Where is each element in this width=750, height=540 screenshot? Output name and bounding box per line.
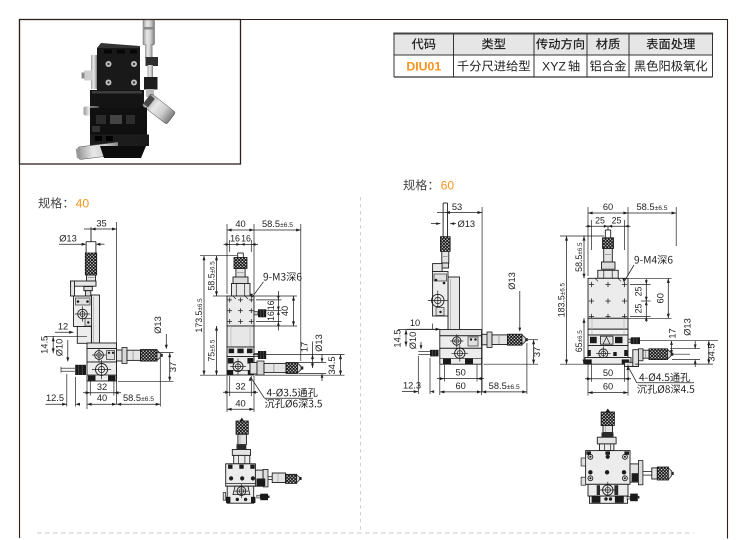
svg-text:173.5±6.5: 173.5±6.5 (194, 298, 204, 333)
svg-text:58.5±6.5: 58.5±6.5 (262, 219, 293, 229)
svg-text:58.5±6.5: 58.5±6.5 (489, 381, 520, 391)
svg-text:34.5: 34.5 (707, 343, 717, 361)
svg-text:60: 60 (656, 293, 666, 303)
svg-text:37: 37 (532, 347, 542, 357)
svg-text:40: 40 (97, 393, 107, 403)
svg-text:25: 25 (612, 215, 622, 225)
svg-text:75±6.5: 75±6.5 (206, 339, 216, 362)
svg-text:60: 60 (603, 202, 613, 212)
svg-text:12: 12 (58, 321, 68, 331)
svg-text:183.5±6.5: 183.5±6.5 (556, 282, 566, 317)
svg-text:60: 60 (456, 381, 466, 391)
svg-text:32: 32 (97, 382, 107, 392)
svg-text:35: 35 (96, 219, 106, 229)
svg-text:14.5: 14.5 (393, 329, 403, 347)
svg-text:65±6.5: 65±6.5 (574, 330, 584, 353)
svg-text:Ø10: Ø10 (408, 332, 418, 350)
svg-text:17: 17 (668, 328, 678, 338)
svg-text:58.5±6.5: 58.5±6.5 (636, 202, 667, 212)
svg-text:XYZ: XYZ (542, 60, 566, 74)
svg-text:10: 10 (410, 318, 420, 328)
svg-text:40: 40 (76, 197, 90, 211)
svg-text:58.5±6.5: 58.5±6.5 (574, 242, 584, 272)
svg-text:17: 17 (300, 342, 310, 352)
svg-text:60: 60 (603, 382, 613, 392)
svg-text:Ø13: Ø13 (458, 219, 476, 229)
svg-text:34.5: 34.5 (327, 356, 337, 374)
svg-text:53: 53 (452, 202, 462, 212)
svg-text:40: 40 (235, 398, 245, 408)
svg-text:50: 50 (603, 368, 613, 378)
svg-text:14.5: 14.5 (40, 336, 50, 354)
svg-text:Ø13: Ø13 (314, 334, 324, 352)
svg-text:16: 16 (230, 234, 240, 244)
svg-text:Ø13: Ø13 (153, 316, 163, 334)
svg-text:25: 25 (634, 287, 644, 297)
svg-text:Ø13: Ø13 (507, 272, 517, 290)
svg-text:12.3: 12.3 (403, 381, 421, 391)
svg-text:37: 37 (168, 362, 178, 372)
svg-text:Ø13: Ø13 (59, 234, 77, 244)
svg-text:12.5: 12.5 (46, 393, 64, 403)
svg-text:Ø10: Ø10 (55, 339, 65, 357)
svg-text:40: 40 (280, 306, 290, 316)
svg-text:16: 16 (266, 311, 276, 321)
svg-text:DIU01: DIU01 (406, 60, 441, 74)
svg-text:25: 25 (634, 304, 644, 314)
svg-text:16: 16 (266, 300, 276, 310)
svg-text:Ø13: Ø13 (682, 318, 692, 336)
svg-text:40: 40 (235, 219, 245, 229)
svg-text:16: 16 (241, 234, 251, 244)
svg-text:25: 25 (595, 215, 605, 225)
svg-text:50: 50 (456, 368, 466, 378)
svg-text:60: 60 (441, 179, 455, 193)
svg-text:32: 32 (235, 381, 245, 391)
svg-text:58.5±6.5: 58.5±6.5 (206, 261, 216, 291)
svg-text:58.5±6.5: 58.5±6.5 (123, 393, 154, 403)
